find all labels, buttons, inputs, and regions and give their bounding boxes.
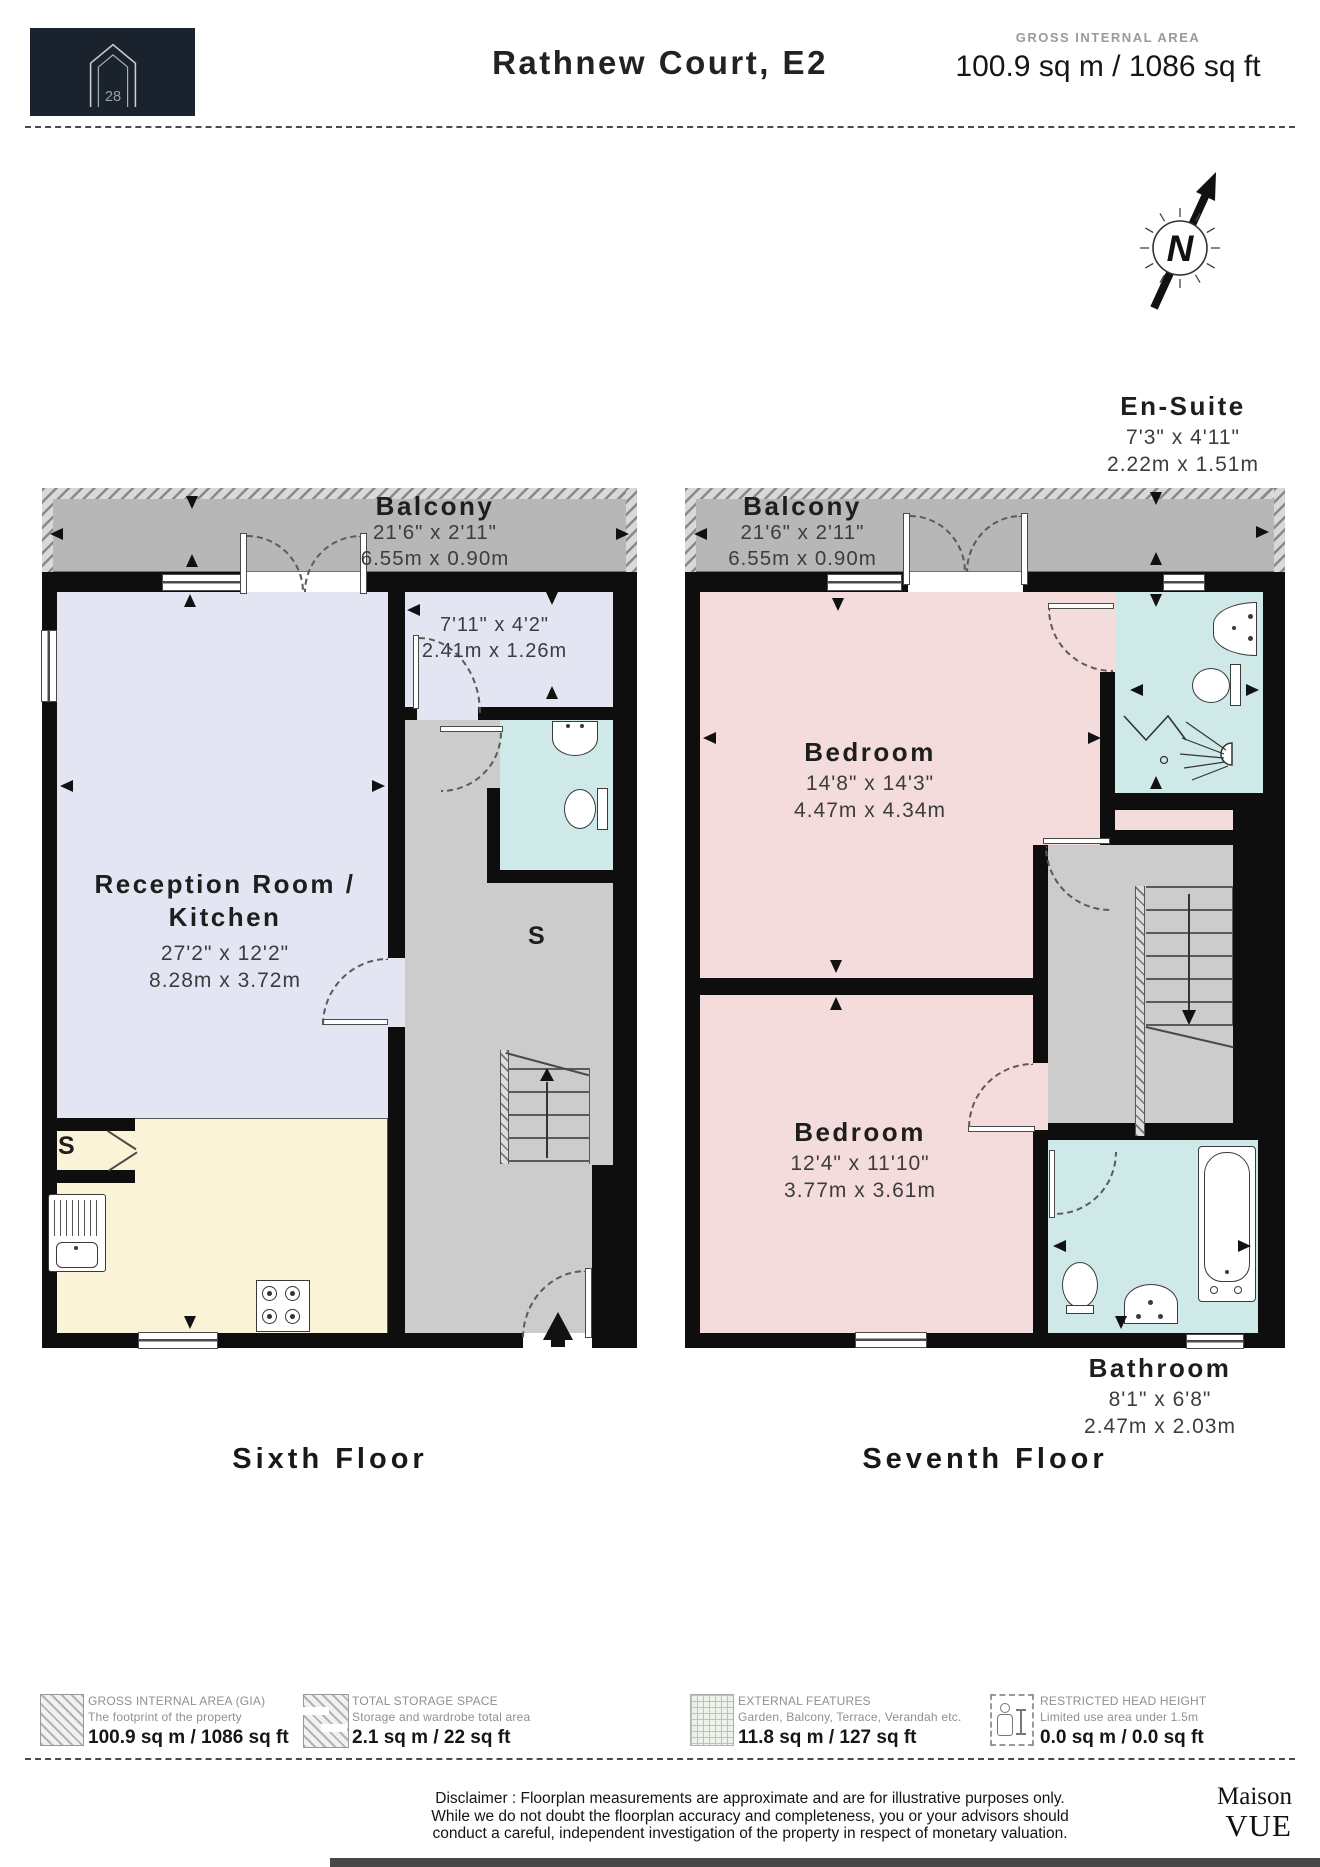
disclaimer: Disclaimer : Floorplan measurements are …	[350, 1790, 1150, 1843]
wall	[1258, 1140, 1285, 1348]
toilet-tank	[1230, 664, 1241, 706]
dim-arrow	[1150, 594, 1162, 607]
dim-arrow	[616, 528, 629, 540]
storage-label: S	[528, 922, 546, 951]
external-swatch	[690, 1694, 734, 1746]
bedroom1-label: Bedroom	[750, 736, 990, 769]
toilet-bowl	[564, 789, 596, 829]
brand-name: Maison	[1180, 1784, 1292, 1810]
wall	[487, 870, 613, 883]
balcony-label: Balcony	[690, 490, 915, 523]
sink-tap	[1158, 1314, 1163, 1319]
disclaimer-line: conduct a careful, independent investiga…	[350, 1825, 1150, 1843]
wall	[1100, 793, 1263, 810]
compass-north-icon: N	[1128, 158, 1240, 333]
page-title: Rathnew Court, E2	[380, 44, 940, 82]
gia-value: 100.9 sq m / 1086 sq ft	[938, 50, 1278, 84]
reception-dims: 27'2" x 12'2" 8.28m x 3.72m	[75, 940, 375, 994]
dim-arrow	[830, 960, 842, 973]
head-height-swatch	[990, 1694, 1034, 1746]
dim-arrow	[703, 732, 716, 744]
balcony-dims: 21'6" x 2'11" 6.55m x 0.90m	[690, 520, 915, 572]
wall	[478, 707, 613, 720]
dim-arrow	[546, 592, 558, 605]
kitchen-storage-label: S	[58, 1132, 76, 1161]
entry-arrow-icon	[543, 1312, 573, 1340]
stair-up-arrow	[540, 1068, 554, 1081]
reception-label: Reception Room / Kitchen	[75, 868, 375, 934]
person-icon	[1000, 1703, 1010, 1713]
person-icon	[997, 1714, 1013, 1736]
gauge-icon	[1016, 1709, 1026, 1711]
door-leaf	[240, 533, 247, 594]
legend-value: 100.9 sq m / 1086 sq ft	[88, 1727, 289, 1749]
wall	[48, 1170, 135, 1183]
gauge-icon	[1016, 1733, 1026, 1735]
sink-tap	[1248, 614, 1253, 619]
lobby-dims: 7'11" x 4'2" 2.41m x 1.26m	[402, 612, 587, 664]
bathtub-tap	[1210, 1286, 1218, 1294]
storage-swatch	[303, 1694, 347, 1746]
legend-title: TOTAL STORAGE SPACE	[352, 1694, 498, 1708]
window	[1186, 1334, 1244, 1349]
bottom-bar	[330, 1858, 1320, 1867]
wall	[42, 1333, 523, 1348]
window	[138, 1332, 218, 1349]
bathroom-label: Bathroom	[1030, 1352, 1290, 1385]
dim-arrow	[1053, 1240, 1066, 1252]
logo-number: 28	[105, 89, 121, 105]
dim-arrow	[1150, 552, 1162, 565]
window	[855, 1332, 927, 1348]
sink-tap	[1248, 636, 1253, 641]
dim-arrow	[1256, 526, 1269, 538]
wall	[48, 1118, 135, 1131]
dim-arrow	[1238, 1240, 1251, 1252]
staircase-up	[508, 1068, 590, 1164]
bedroom2-label: Bedroom	[740, 1116, 980, 1149]
stair-arrow-stem	[546, 1082, 548, 1158]
hob-burner	[262, 1309, 277, 1324]
window	[827, 574, 902, 591]
gia-swatch	[40, 1694, 84, 1746]
legend-value: 0.0 sq m / 0.0 sq ft	[1040, 1727, 1204, 1749]
stair-balustrade	[500, 1050, 509, 1164]
hob-burner	[285, 1309, 300, 1324]
gia-label: GROSS INTERNAL AREA	[938, 30, 1278, 45]
disclaimer-line: Disclaimer : Floorplan measurements are …	[350, 1790, 1150, 1808]
wall	[592, 1165, 637, 1348]
toilet-base	[1066, 1305, 1094, 1314]
sink-drain	[1232, 626, 1236, 630]
kitchen-area	[57, 1118, 388, 1333]
legend-title: EXTERNAL FEATURES	[738, 1694, 871, 1708]
sixth-floor-title: Sixth Floor	[180, 1443, 480, 1476]
hob-burner	[262, 1286, 277, 1301]
wall	[487, 788, 500, 870]
bathroom-dims: 8'1" x 6'8" 2.47m x 2.03m	[1030, 1386, 1290, 1440]
window	[41, 630, 57, 702]
bedroom2-dims: 12'4" x 11'10" 3.77m x 3.61m	[740, 1150, 980, 1204]
legend-subtitle: Garden, Balcony, Terrace, Verandah etc.	[738, 1710, 961, 1724]
ensuite-dims: 7'3" x 4'11" 2.22m x 1.51m	[1078, 424, 1288, 478]
compass-n: N	[1167, 228, 1195, 269]
window	[1163, 574, 1205, 591]
wall	[1110, 830, 1233, 845]
legend-subtitle: Storage and wardrobe total area	[352, 1710, 530, 1724]
wall	[700, 978, 1038, 995]
legend-subtitle: Limited use area under 1.5m	[1040, 1710, 1198, 1724]
sink-tap	[74, 1246, 78, 1250]
dim-arrow	[60, 780, 73, 792]
legend-value: 2.1 sq m / 22 sq ft	[352, 1727, 510, 1749]
wall	[367, 572, 637, 592]
wall	[1263, 572, 1285, 810]
dim-arrow	[1115, 1316, 1127, 1329]
logo-box: 28	[30, 28, 195, 116]
toilet-tank	[597, 788, 608, 830]
wall	[1100, 672, 1115, 793]
wall	[388, 1027, 405, 1333]
balcony-label: Balcony	[300, 490, 570, 523]
floorplan-page: 28 Rathnew Court, E2 GROSS INTERNAL AREA…	[0, 0, 1320, 1867]
entry-arrow-stem	[551, 1338, 565, 1347]
sink-tap	[566, 724, 570, 728]
dim-arrow	[1150, 776, 1162, 789]
stair-down-arrow	[1182, 1010, 1196, 1025]
dim-arrow	[184, 594, 196, 607]
bathtub-drain	[1225, 1270, 1229, 1274]
balcony-dims: 21'6" x 2'11" 6.55m x 0.90m	[300, 520, 570, 572]
dim-arrow	[830, 997, 842, 1010]
dim-arrow	[372, 780, 385, 792]
dim-arrow	[186, 554, 198, 567]
dim-arrow	[186, 496, 198, 509]
shower-icon	[1120, 710, 1255, 790]
dim-arrow	[1246, 684, 1259, 696]
dim-arrow	[184, 1316, 196, 1329]
hob-burner	[285, 1286, 300, 1301]
bathtub-tap	[1234, 1286, 1242, 1294]
wall	[685, 572, 700, 1348]
door-leaf	[1043, 838, 1110, 844]
sink-drainer	[54, 1200, 100, 1236]
bathtub-inner	[1204, 1152, 1250, 1282]
disclaimer-line: While we do not doubt the floorplan accu…	[350, 1808, 1150, 1826]
dim-arrow	[546, 686, 558, 699]
dim-arrow	[1088, 732, 1101, 744]
door-leaf	[1021, 513, 1028, 585]
dim-arrow	[1130, 684, 1143, 696]
dim-arrow	[832, 598, 844, 611]
sink-drain	[1148, 1300, 1153, 1305]
dim-arrow	[50, 528, 63, 540]
toilet-bowl	[1192, 668, 1230, 703]
wall	[1033, 1130, 1048, 1348]
brand-sub: VUE	[1180, 1810, 1292, 1842]
wall	[1023, 572, 1285, 592]
footer-divider	[25, 1758, 1295, 1760]
brand-logo: Maison VUE	[1180, 1784, 1292, 1842]
legend-subtitle: The footprint of the property	[88, 1710, 242, 1724]
dim-arrow	[1150, 492, 1162, 505]
sink-tap	[1136, 1314, 1141, 1319]
legend-title: GROSS INTERNAL AREA (GIA)	[88, 1694, 265, 1708]
bedroom1-dims: 14'8" x 14'3" 4.47m x 4.34m	[750, 770, 990, 824]
entrance-door-leaf	[585, 1268, 592, 1338]
bathroom-sink	[552, 721, 598, 756]
gauge-icon	[1020, 1710, 1022, 1734]
window	[162, 574, 247, 591]
header-divider	[25, 126, 1295, 128]
legend-value: 11.8 sq m / 127 sq ft	[738, 1727, 916, 1749]
wall	[1233, 810, 1285, 1140]
toilet-bowl	[1062, 1262, 1098, 1308]
sink-tap	[580, 724, 584, 728]
stair-arrow-stem	[1188, 894, 1190, 1014]
balcony-hatch	[1274, 488, 1285, 572]
seventh-floor-title: Seventh Floor	[835, 1443, 1135, 1476]
house-icon: 28	[78, 33, 148, 109]
legend-title: RESTRICTED HEAD HEIGHT	[1040, 1694, 1206, 1708]
ensuite-label: En-Suite	[1078, 390, 1288, 423]
stair-balustrade	[1135, 886, 1145, 1136]
wall	[1033, 845, 1048, 1063]
